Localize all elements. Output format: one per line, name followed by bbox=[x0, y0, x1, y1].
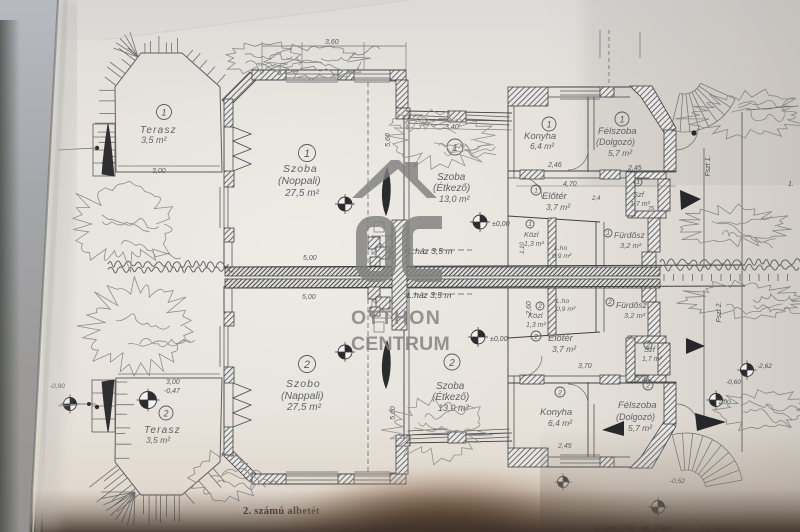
svg-text:(Noppali): (Noppali) bbox=[278, 175, 321, 187]
svg-text:Szoba: Szoba bbox=[283, 163, 318, 175]
svg-text:3,5 m²: 3,5 m² bbox=[141, 135, 168, 145]
svg-text:(Dolgozó): (Dolgozó) bbox=[616, 412, 655, 422]
svg-text:1.: 1. bbox=[788, 181, 794, 188]
svg-text:-0,47: -0,47 bbox=[164, 388, 181, 395]
svg-text:L.ház 3,5 m: L.ház 3,5 m bbox=[408, 246, 452, 256]
svg-text:3,00: 3,00 bbox=[166, 379, 180, 386]
svg-text:(Étkező): (Étkező) bbox=[432, 390, 469, 403]
svg-text:Szf: Szf bbox=[644, 345, 656, 354]
svg-text:Szf: Szf bbox=[633, 190, 645, 199]
svg-text:2: 2 bbox=[645, 382, 650, 389]
svg-text:CENTRUM: CENTRUM bbox=[351, 333, 450, 355]
svg-text:2: 2 bbox=[607, 299, 612, 306]
svg-text:3,2 m²: 3,2 m² bbox=[624, 311, 646, 320]
svg-text:(Étkező): (Étkező) bbox=[433, 181, 470, 194]
svg-text:1: 1 bbox=[528, 221, 532, 228]
svg-text:Előtér: Előtér bbox=[542, 191, 568, 202]
svg-text:3,7 m²: 3,7 m² bbox=[552, 344, 577, 354]
svg-text:1: 1 bbox=[636, 179, 640, 186]
svg-text:2: 2 bbox=[533, 333, 538, 340]
svg-text:1,00: 1,00 bbox=[718, 399, 731, 406]
svg-text:Szobo: Szobo bbox=[286, 378, 321, 390]
svg-text:1,7 m²: 1,7 m² bbox=[630, 201, 651, 208]
svg-text:L.ho: L.ho bbox=[556, 298, 569, 305]
svg-text:Félszoba: Félszoba bbox=[598, 126, 637, 137]
svg-text:27,5 m²: 27,5 m² bbox=[284, 188, 320, 199]
svg-text:Közl: Közl bbox=[528, 311, 543, 320]
svg-text:1: 1 bbox=[304, 148, 310, 160]
svg-text:13,0 m²: 13,0 m² bbox=[439, 194, 471, 204]
svg-text:3,60: 3,60 bbox=[325, 39, 339, 46]
svg-text:Előtér: Előtér bbox=[548, 333, 574, 344]
svg-text:27,5 m²: 27,5 m² bbox=[286, 402, 322, 413]
svg-text:0,9 m²: 0,9 m² bbox=[552, 253, 572, 260]
svg-text:Fürdősz: Fürdősz bbox=[616, 300, 647, 310]
svg-text:(Dolgozó): (Dolgozó) bbox=[596, 137, 635, 147]
svg-text:3,70: 3,70 bbox=[578, 363, 592, 370]
svg-text:1,7 m²: 1,7 m² bbox=[642, 356, 663, 363]
svg-text:1: 1 bbox=[606, 230, 610, 237]
svg-text:Fürdősz: Fürdősz bbox=[614, 230, 645, 240]
svg-text:1: 1 bbox=[161, 108, 166, 118]
svg-text:3,40: 3,40 bbox=[445, 124, 459, 131]
svg-text:Fszt 1.: Fszt 1. bbox=[705, 155, 712, 176]
svg-text:1: 1 bbox=[620, 114, 625, 124]
svg-text:2: 2 bbox=[537, 303, 542, 310]
svg-text:±0,00: ±0,00 bbox=[492, 221, 510, 228]
svg-text:-2,62: -2,62 bbox=[757, 363, 772, 370]
svg-text:Fszt 2.: Fszt 2. bbox=[716, 301, 723, 322]
svg-text:OTTHON: OTTHON bbox=[351, 307, 441, 329]
svg-text:2: 2 bbox=[303, 359, 310, 371]
svg-text:Szoba: Szoba bbox=[437, 172, 466, 183]
svg-text:Félszoba: Félszoba bbox=[618, 400, 657, 411]
svg-text:2,45: 2,45 bbox=[627, 165, 642, 172]
svg-text:2: 2 bbox=[448, 358, 455, 369]
svg-text:5,00: 5,00 bbox=[303, 255, 317, 262]
svg-text:5,7 m²: 5,7 m² bbox=[608, 148, 633, 158]
svg-text:1,3 m²: 1,3 m² bbox=[524, 241, 545, 248]
svg-text:(Nappali): (Nappali) bbox=[281, 390, 324, 402]
svg-text:1: 1 bbox=[547, 119, 552, 129]
svg-text:2: 2 bbox=[557, 389, 562, 396]
svg-text:5,00: 5,00 bbox=[302, 294, 316, 301]
svg-text:2,4: 2,4 bbox=[591, 196, 601, 202]
svg-text:Közl: Közl bbox=[524, 230, 539, 239]
svg-text:-0,60: -0,60 bbox=[726, 379, 741, 386]
svg-text:Konyha: Konyha bbox=[540, 407, 572, 418]
svg-text:3,00: 3,00 bbox=[152, 168, 166, 175]
svg-text:L.ho: L.ho bbox=[554, 245, 567, 252]
svg-text:1,3 m²: 1,3 m² bbox=[526, 322, 547, 329]
svg-text:6,4 m²: 6,4 m² bbox=[530, 141, 555, 151]
svg-text:3,2 m²: 3,2 m² bbox=[620, 241, 642, 250]
svg-text:2,46: 2,46 bbox=[547, 162, 562, 169]
svg-text:6,4 m²: 6,4 m² bbox=[548, 418, 573, 428]
svg-text:L.ház 3,5 m: L.ház 3,5 m bbox=[407, 290, 451, 300]
svg-text:Szoba: Szoba bbox=[436, 381, 465, 392]
svg-text:4,70: 4,70 bbox=[563, 181, 577, 188]
svg-text:1: 1 bbox=[534, 187, 538, 194]
svg-text:2: 2 bbox=[163, 408, 169, 418]
svg-text:0,9 m²: 0,9 m² bbox=[556, 306, 576, 313]
svg-text:3,7 m²: 3,7 m² bbox=[546, 202, 571, 212]
svg-text:±0,00: ±0,00 bbox=[490, 336, 508, 343]
svg-text:3,5 m²: 3,5 m² bbox=[146, 435, 171, 445]
